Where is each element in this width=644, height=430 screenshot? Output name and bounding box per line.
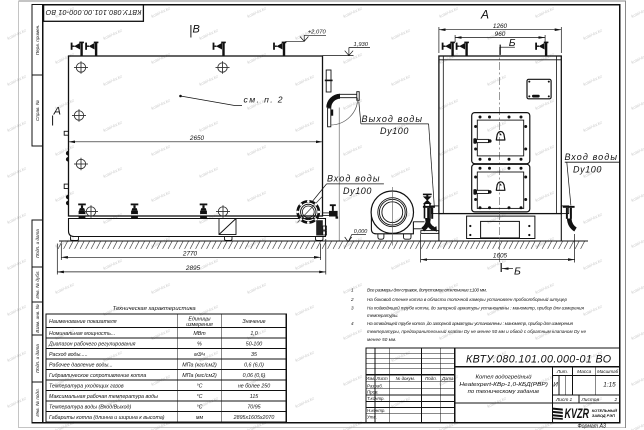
svg-text:Подп. и дата: Подп. и дата (35, 344, 40, 373)
svg-text:1:15: 1:15 (603, 381, 616, 388)
svg-text:Наименование показателя: Наименование показателя (49, 319, 117, 325)
svg-text:На отводящей трубе котла ,до з: На отводящей трубе котла ,до запорной ар… (367, 320, 574, 326)
svg-text:измерения: измерения (186, 322, 213, 328)
svg-text:Пров.: Пров. (367, 390, 379, 395)
svg-text:35: 35 (251, 352, 257, 358)
svg-text:Лист: Лист (555, 397, 568, 403)
svg-text:2: 2 (350, 297, 354, 302)
svg-text:Подп. и дата: Подп. и дата (35, 229, 40, 258)
svg-text:Рабочее давление воды...: Рабочее давление воды... (49, 363, 113, 369)
svg-text:2770: 2770 (182, 250, 198, 257)
svg-text:1260: 1260 (493, 23, 508, 30)
svg-text:2: 2 (614, 397, 618, 403)
svg-text:Расход воды.....: Расход воды..... (49, 352, 88, 358)
svg-text:Б: Б (514, 266, 521, 278)
svg-text:Инв. № дубл.: Инв. № дубл. (35, 270, 40, 298)
svg-text:3: 3 (351, 305, 354, 310)
svg-text:Вход воды: Вход воды (327, 174, 381, 184)
svg-text:м3/ч: м3/ч (194, 352, 205, 358)
svg-text:1605: 1605 (493, 253, 508, 260)
svg-text:Б: Б (509, 37, 516, 49)
svg-text:Dy100: Dy100 (380, 126, 409, 136)
svg-text:ЗАВОД РЭП: ЗАВОД РЭП (592, 413, 615, 418)
svg-text:Heatexpert-КВр-1,0-КБД(РВР): Heatexpert-КВр-1,0-КБД(РВР) (459, 382, 548, 388)
svg-text:В: В (193, 24, 200, 36)
svg-text:+2,070: +2,070 (308, 30, 327, 36)
svg-text:°С: °С (197, 405, 203, 411)
svg-text:МВт: МВт (193, 331, 206, 337)
svg-text:Листов: Листов (581, 397, 600, 403)
svg-text:Масса: Масса (577, 369, 592, 375)
svg-text:А: А (53, 106, 61, 118)
svg-text:И: И (553, 381, 558, 388)
svg-text:Dy100: Dy100 (343, 186, 372, 196)
svg-text:мм: мм (196, 415, 204, 421)
svg-text:1: 1 (351, 288, 354, 293)
svg-text:2895: 2895 (185, 265, 201, 272)
svg-text:Dy100: Dy100 (573, 165, 602, 175)
svg-text:Масштаб: Масштаб (597, 369, 618, 375)
svg-text:МПа (кгс/см2): МПа (кгс/см2) (182, 373, 217, 379)
svg-text:2895х1605х2070: 2895х1605х2070 (233, 415, 275, 421)
svg-text:0,000: 0,000 (354, 229, 368, 235)
svg-text:На подводящей трубе котла, д: На подводящей трубе котла, до запорной а… (367, 304, 585, 310)
svg-text:Справ. №: Справ. № (35, 100, 40, 121)
svg-text:Диапазон рабочего регулировани: Диапазон рабочего регулирования (48, 342, 136, 348)
svg-text:Н.контр.: Н.контр. (367, 408, 386, 413)
svg-text:Перв. примен.: Перв. примен. (35, 25, 40, 56)
svg-text:Котел водогрейный: Котел водогрейный (475, 374, 532, 381)
svg-text:Т.контр.: Т.контр. (367, 396, 385, 401)
svg-text:Изм.: Изм. (366, 376, 375, 381)
svg-text:1: 1 (570, 397, 573, 403)
svg-text:температуры, предохранительный: температуры, предохранительный клапан Dy… (367, 328, 586, 334)
svg-text:Температура уходящих газов: Температура уходящих газов (49, 384, 124, 390)
svg-text:115: 115 (250, 394, 258, 400)
svg-text:Значение: Значение (242, 319, 265, 325)
svg-text:Техническая характеристика: Техническая характеристика (113, 306, 196, 312)
svg-text:№ докум.: № докум. (396, 376, 415, 381)
svg-text:Вход воды: Вход воды (565, 152, 619, 162)
svg-text:Лит.: Лит. (556, 369, 568, 375)
svg-text:Дата: Дата (441, 376, 454, 381)
svg-text:МПа (кгс/см2): МПа (кгс/см2) (182, 363, 217, 369)
svg-text:Номинальная мощность...: Номинальная мощность... (49, 331, 115, 337)
svg-text:Формат А3: Формат А3 (578, 423, 606, 429)
svg-text:Все размеры для справок, допус: Все размеры для справок, допустимое откл… (367, 288, 487, 293)
svg-text:КВТУ.080.101.00.000-01 ВО: КВТУ.080.101.00.000-01 ВО (466, 354, 612, 366)
svg-text:1,930: 1,930 (354, 42, 369, 48)
svg-text:0,6 (6,0): 0,6 (6,0) (244, 363, 264, 369)
svg-text:см. п. 2: см. п. 2 (244, 95, 284, 105)
svg-text:1,0: 1,0 (250, 331, 257, 337)
svg-text:Гидравлическое сопротивление к: Гидравлическое сопротивление котла (49, 373, 146, 379)
svg-text:КВТУ.080.101.00.000-01 ВО: КВТУ.080.101.00.000-01 ВО (45, 8, 141, 16)
svg-text:На боковой стенке котла в обла: На боковой стенке котла в области топочн… (367, 296, 567, 302)
svg-text:Габариты котла (длинна и ширин: Габариты котла (длинна и ширина к высота… (49, 415, 165, 421)
svg-text:0,06 (0,6): 0,06 (0,6) (243, 373, 266, 379)
svg-text:температуры.: температуры. (367, 313, 399, 318)
svg-text:70/95: 70/95 (247, 405, 260, 411)
svg-text:960: 960 (495, 31, 506, 38)
svg-text:менее 50 мм.: менее 50 мм. (367, 337, 397, 342)
svg-text:по техническому задание: по техническому задание (468, 389, 540, 395)
svg-text:Подп.: Подп. (425, 376, 437, 381)
svg-text:Взам. инв. №: Взам. инв. № (35, 304, 40, 332)
svg-text:Разраб.: Разраб. (367, 383, 383, 388)
svg-text:50-100: 50-100 (246, 342, 263, 348)
svg-text:°С: °С (197, 394, 203, 400)
svg-text:°С: °С (197, 384, 203, 390)
svg-text:Температура воды (Вход/Выход): Температура воды (Вход/Выход) (49, 405, 131, 411)
svg-text:Утв.: Утв. (367, 414, 377, 419)
svg-text:%: % (197, 342, 202, 348)
svg-text:Максимальная рабочая температу: Максимальная рабочая температура воды (49, 394, 158, 400)
svg-text:4: 4 (351, 321, 354, 326)
svg-text:А: А (480, 7, 489, 21)
svg-text:2650: 2650 (189, 135, 205, 142)
svg-text:Инв. № подл.: Инв. № подл. (35, 388, 40, 417)
svg-text:KVZR: KVZR (565, 406, 590, 421)
svg-text:не более 250: не более 250 (238, 384, 270, 390)
svg-text:Лист: Лист (375, 376, 388, 381)
svg-text:Выход воды: Выход воды (362, 114, 424, 124)
